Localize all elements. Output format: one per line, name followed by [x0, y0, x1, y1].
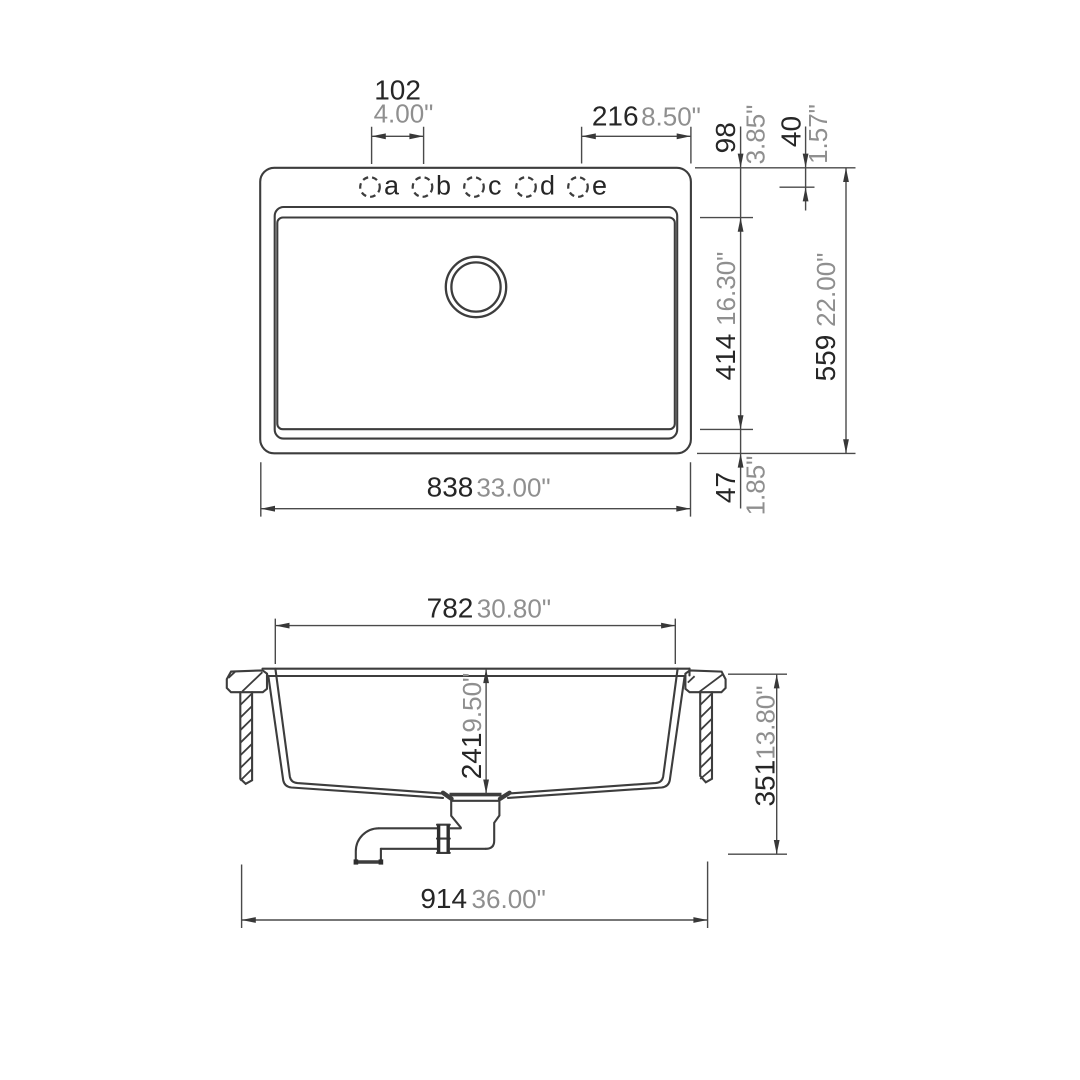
svg-text:c: c — [488, 171, 502, 201]
svg-text:1.57": 1.57" — [803, 104, 833, 164]
svg-text:914: 914 — [420, 883, 467, 914]
svg-text:d: d — [540, 171, 555, 201]
svg-text:414 16.30": 414 16.30" — [710, 252, 741, 381]
svg-text:2419.50": 2419.50" — [456, 673, 487, 780]
svg-text:3.85": 3.85" — [741, 105, 771, 165]
svg-text:e: e — [592, 171, 607, 201]
svg-text:36.00": 36.00" — [472, 884, 546, 914]
svg-text:838: 838 — [427, 472, 474, 503]
svg-text:1.85": 1.85" — [741, 456, 771, 516]
svg-text:30.80": 30.80" — [477, 594, 551, 624]
svg-text:33.00": 33.00" — [476, 473, 550, 503]
svg-text:216: 216 — [592, 101, 639, 132]
svg-text:98: 98 — [710, 122, 741, 153]
svg-text:40: 40 — [776, 116, 807, 147]
svg-text:b: b — [436, 171, 451, 201]
svg-text:8.50": 8.50" — [641, 102, 701, 132]
svg-text:782: 782 — [427, 593, 474, 624]
svg-text:559 22.00": 559 22.00" — [810, 253, 841, 382]
svg-text:47: 47 — [710, 472, 741, 503]
svg-text:4.00": 4.00" — [374, 99, 434, 129]
svg-text:35113.80": 35113.80" — [750, 685, 781, 806]
svg-text:a: a — [384, 171, 400, 201]
